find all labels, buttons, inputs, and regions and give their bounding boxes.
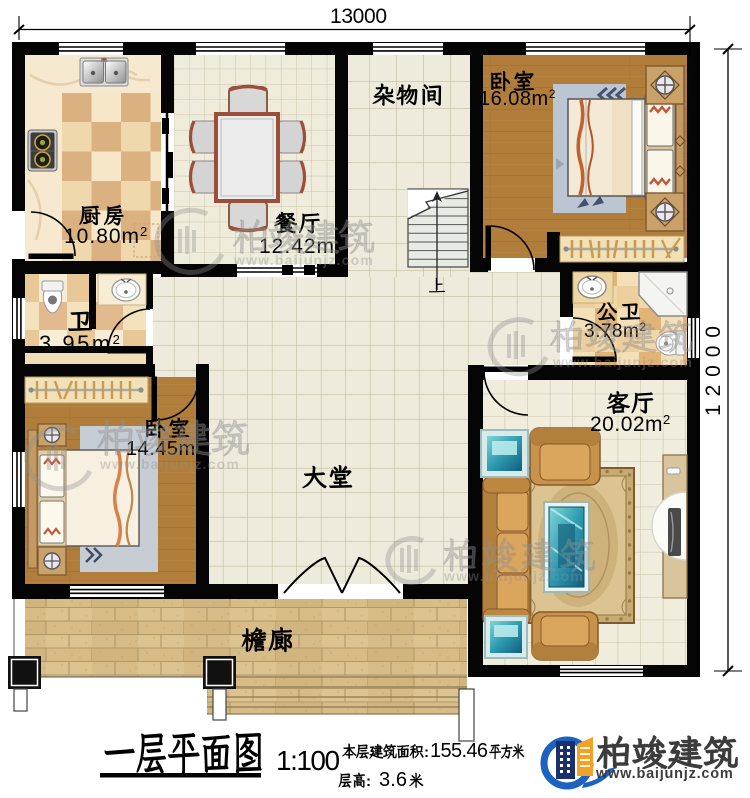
svg-text:12000: 12000	[702, 326, 725, 416]
svg-text:1:100: 1:100	[276, 745, 339, 776]
svg-text:www.baijunjz.com: www.baijunjz.com	[99, 456, 240, 472]
svg-text:www.baijunjz.com: www.baijunjz.com	[552, 354, 693, 370]
svg-text:3.95m2: 3.95m2	[39, 331, 122, 356]
svg-text:20.02m2: 20.02m2	[590, 412, 671, 436]
svg-text::: :	[424, 744, 429, 761]
svg-text:www.baijunjz.com: www.baijunjz.com	[443, 568, 584, 584]
svg-text:16.08m2: 16.08m2	[479, 87, 556, 110]
svg-text:3.6: 3.6	[379, 769, 407, 791]
svg-text:10.80m2: 10.80m2	[64, 224, 148, 248]
svg-text:155.46: 155.46	[430, 740, 488, 762]
svg-text:www.baijunjz.com: www.baijunjz.com	[595, 766, 733, 782]
svg-text:13000: 13000	[330, 5, 387, 28]
svg-text::: :	[366, 773, 371, 790]
svg-text:www.baijunjz.com: www.baijunjz.com	[233, 252, 374, 268]
